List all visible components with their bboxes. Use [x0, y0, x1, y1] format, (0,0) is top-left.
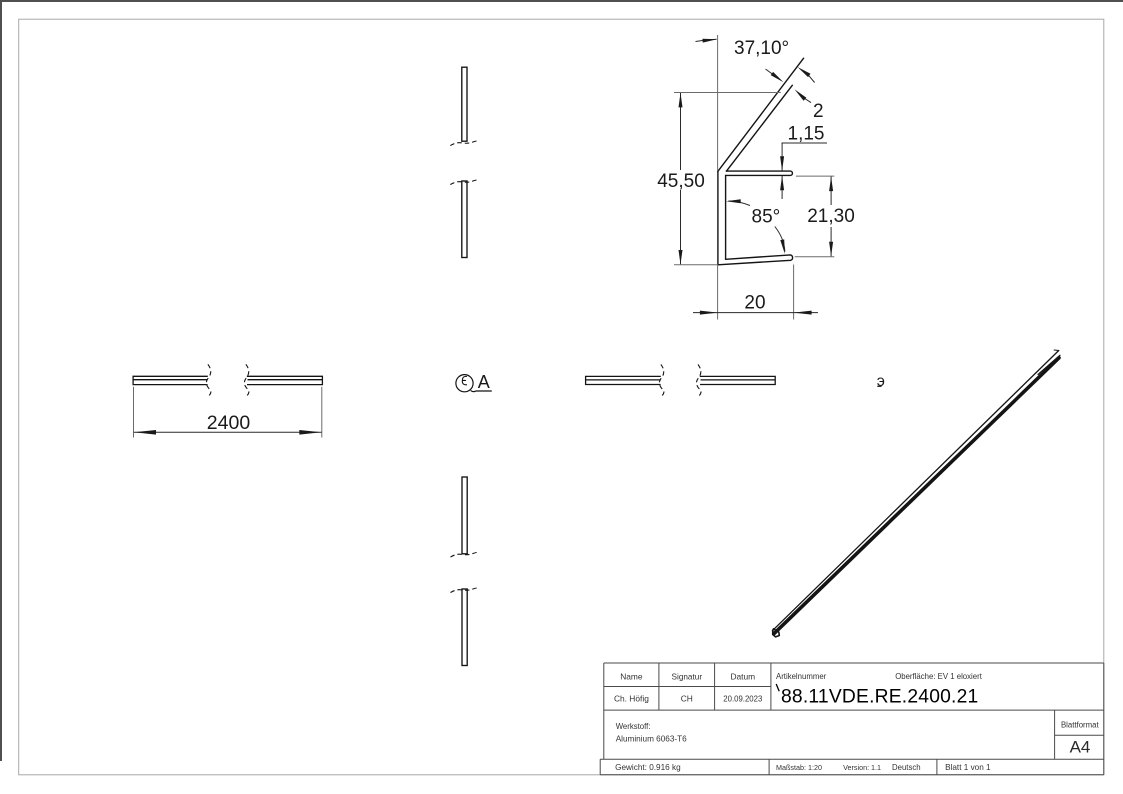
svg-text:Deutsch: Deutsch: [892, 763, 921, 772]
svg-text:Datum: Datum: [730, 672, 755, 682]
svg-text:A: A: [478, 372, 490, 392]
svg-text:Gewicht: 0.916 kg: Gewicht: 0.916 kg: [615, 763, 681, 772]
svg-text:45,50: 45,50: [657, 171, 705, 192]
svg-text:Name: Name: [620, 672, 643, 682]
svg-text:CH: CH: [681, 694, 693, 704]
svg-text:85°: 85°: [752, 207, 781, 228]
svg-text:Aluminium 6063-T6: Aluminium 6063-T6: [616, 735, 687, 744]
svg-text:20.09.2023: 20.09.2023: [723, 695, 762, 704]
svg-text:Werkstoff:: Werkstoff:: [616, 722, 651, 731]
svg-text:Blatt 1 von 1: Blatt 1 von 1: [945, 763, 991, 772]
svg-text:2: 2: [813, 101, 824, 122]
svg-text:э: э: [877, 373, 885, 390]
svg-text:Oberfläche: EV 1 eloxiert: Oberfläche: EV 1 eloxiert: [895, 672, 983, 681]
svg-text:Maßstab: 1:20: Maßstab: 1:20: [776, 763, 822, 772]
svg-text:Version: 1.1: Version: 1.1: [843, 763, 881, 772]
svg-text:Signatur: Signatur: [672, 673, 703, 682]
svg-text:Blattformat: Blattformat: [1061, 721, 1100, 730]
svg-text:Artikelnummer: Artikelnummer: [776, 672, 827, 681]
svg-text:20: 20: [744, 293, 765, 314]
svg-text:88.11VDE.RE.2400.21: 88.11VDE.RE.2400.21: [781, 687, 978, 708]
svg-text:Ch. Höfig: Ch. Höfig: [614, 694, 649, 704]
svg-text:2400: 2400: [207, 412, 251, 434]
svg-text:21,30: 21,30: [807, 206, 855, 227]
svg-text:37,10°: 37,10°: [734, 38, 789, 59]
svg-text:1,15: 1,15: [788, 124, 825, 145]
svg-text:A4: A4: [1070, 738, 1091, 757]
